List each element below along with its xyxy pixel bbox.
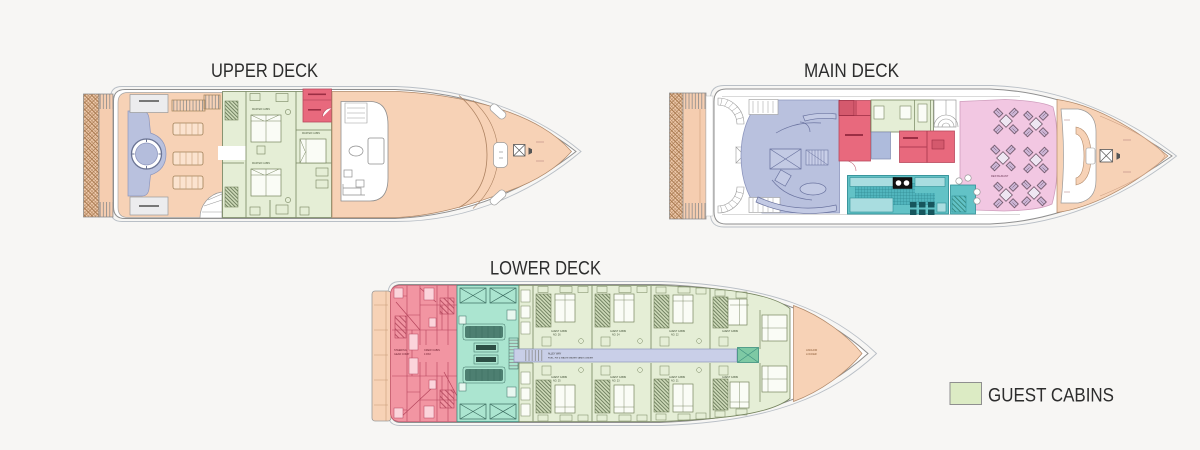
svg-text:UPPER DECK: UPPER DECK: [211, 61, 318, 82]
svg-text:NO. 25: NO. 25: [553, 379, 561, 382]
svg-text:GEAR COMP: GEAR COMP: [394, 353, 410, 356]
svg-text:GUEST CABINS: GUEST CABINS: [988, 385, 1114, 406]
svg-text:4 PAX: 4 PAX: [424, 353, 431, 356]
svg-text:LOWER DECK: LOWER DECK: [490, 258, 601, 279]
svg-text:FUEL, FW & WASTE WATER TANKS U: FUEL, FW & WASTE WATER TANKS UNDER: [548, 357, 593, 360]
svg-text:NO. 24: NO. 24: [612, 333, 620, 336]
svg-text:MASTER CABIN: MASTER CABIN: [252, 162, 270, 165]
svg-text:LOCKER: LOCKER: [806, 352, 817, 356]
svg-text:CREW CABIN: CREW CABIN: [424, 349, 440, 352]
svg-text:MASTER CABIN: MASTER CABIN: [252, 108, 270, 111]
svg-text:NO. 23: NO. 23: [612, 379, 620, 382]
svg-text:GUEST CABIN: GUEST CABIN: [722, 330, 738, 333]
svg-text:MASTER CABIN: MASTER CABIN: [302, 132, 320, 135]
svg-text:NO. 21: NO. 21: [671, 379, 679, 382]
svg-text:RESTAURANT: RESTAURANT: [991, 174, 1009, 178]
svg-text:GUEST CABIN: GUEST CABIN: [722, 376, 738, 379]
svg-text:NO. 26: NO. 26: [553, 333, 561, 336]
svg-text:ALLEY WAY: ALLEY WAY: [548, 353, 562, 356]
svg-text:NO. 22: NO. 22: [671, 333, 679, 336]
svg-text:MAIN DECK: MAIN DECK: [804, 61, 899, 82]
svg-text:ANCHOR: ANCHOR: [806, 348, 817, 352]
svg-text:STEERING: STEERING: [394, 349, 407, 352]
